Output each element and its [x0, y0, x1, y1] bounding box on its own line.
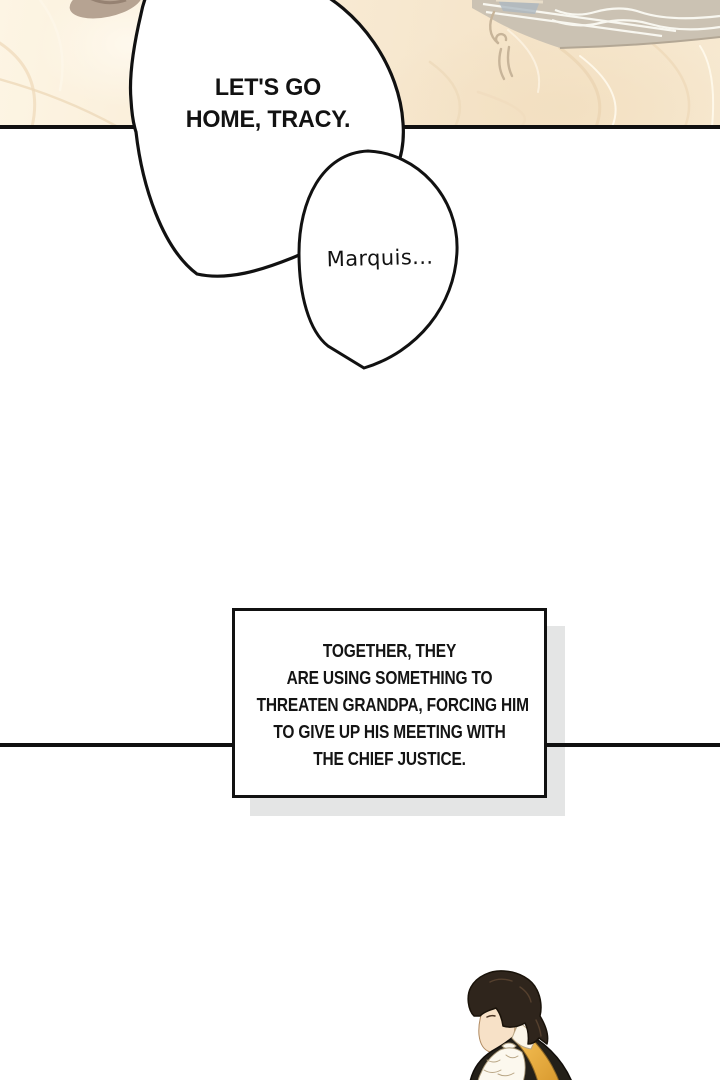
narration-line: TO GIVE UP HIS MEETING WITH	[257, 719, 523, 746]
character-art	[440, 955, 720, 1080]
speech-bubbles	[0, 0, 720, 400]
narration-line: TOGETHER, THEY	[257, 638, 523, 665]
dialogue-main-line2: HOME, TRACY.	[154, 104, 382, 136]
dialogue-main-line1: LET'S GO	[154, 72, 382, 104]
dialogue-small-text: Marquis...	[310, 243, 451, 273]
dialogue-main: LET'S GO HOME, TRACY.	[154, 72, 382, 136]
dialogue-small: Marquis...	[310, 243, 451, 273]
narration-box: TOGETHER, THEY ARE USING SOMETHING TO TH…	[232, 608, 547, 798]
comic-page: LET'S GO HOME, TRACY. Marquis... TOGETHE…	[0, 0, 720, 1080]
narration-line: THE CHIEF JUSTICE.	[257, 746, 523, 773]
narration-line: THREATEN GRANDPA, FORCING HIM	[257, 692, 523, 719]
narration-line: ARE USING SOMETHING TO	[257, 665, 523, 692]
